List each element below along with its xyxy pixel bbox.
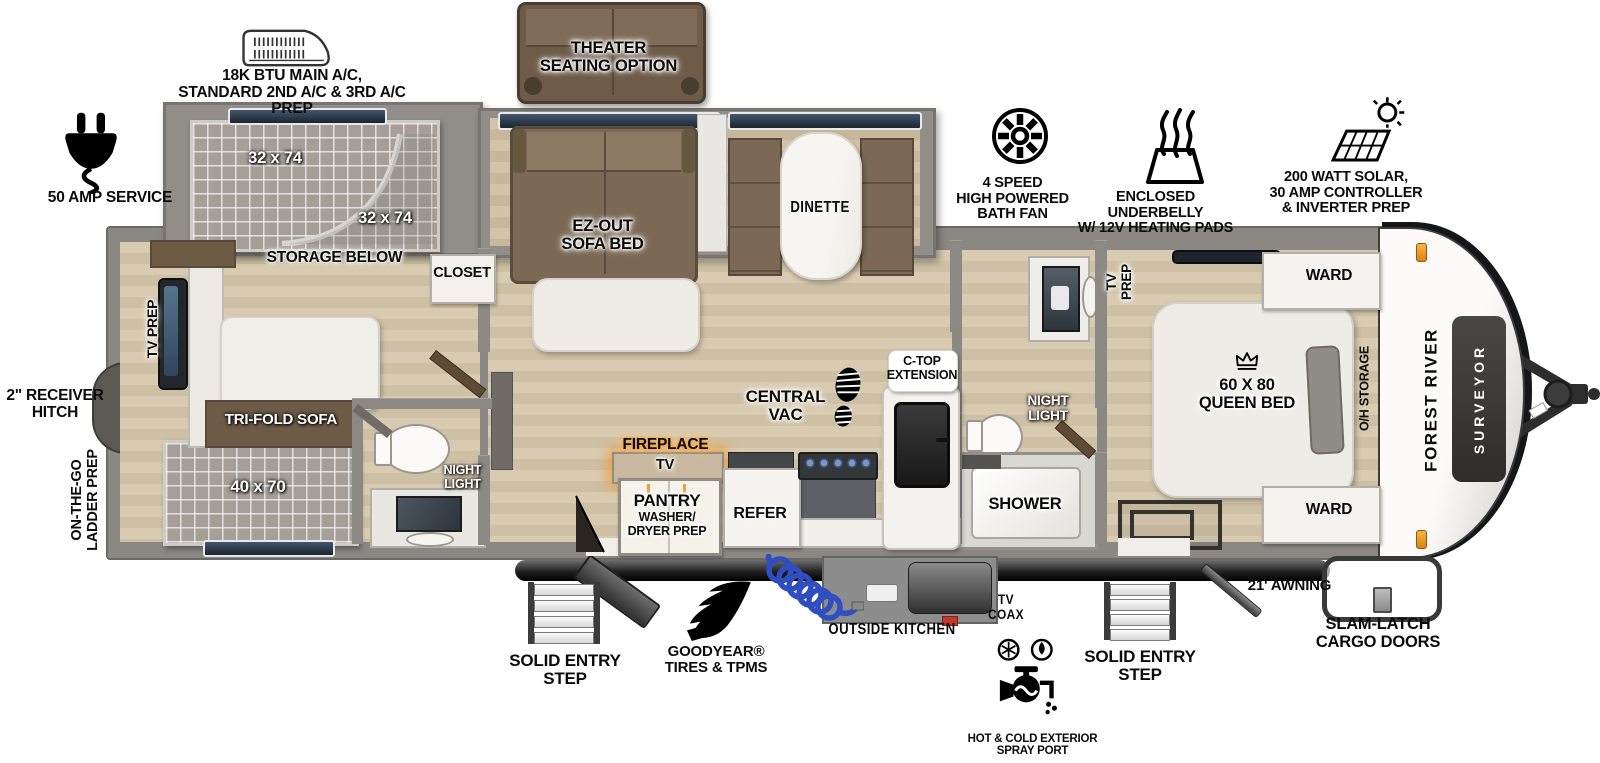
- sink-faucet: [936, 438, 950, 442]
- ez-sofa-pullout-bed: [532, 278, 700, 352]
- solar-label: 200 WATT SOLAR, 30 AMP CONTROLLER & INVE…: [1262, 170, 1430, 217]
- slam-latch-door: [1322, 556, 1442, 622]
- awning-label: 21' AWNING: [1242, 578, 1337, 594]
- spray-port-icon: [995, 638, 1071, 716]
- surveyor-logo: SURVEYOR: [1471, 344, 1487, 454]
- midbath-vanity: [1028, 256, 1090, 342]
- hall-wardrobe: [491, 372, 513, 470]
- surveyor-panel: SURVEYOR: [1452, 316, 1506, 482]
- rear-vanity-mirror: [396, 496, 462, 532]
- midbath-sink-basin: [1051, 286, 1069, 310]
- step-tread: [534, 584, 594, 596]
- underbelly-heat-icon: [1140, 108, 1210, 186]
- dinette-slide-window: [728, 112, 922, 130]
- fireplace-label: FIREPLACE: [608, 437, 723, 454]
- refer-label: REFER: [718, 505, 802, 522]
- stove-cooktop: [798, 452, 878, 480]
- oh-storage-label: O/H STORAGE: [1359, 323, 1374, 455]
- outside-kitchen-label: OUTSIDE KITCHEN: [824, 622, 960, 639]
- step-tread: [1110, 599, 1170, 611]
- bedroom-wall-lower: [1095, 452, 1107, 544]
- step-tread: [1110, 614, 1170, 626]
- bedroom-entry-gap: [1118, 538, 1190, 556]
- midbath-vanity-sink: [1042, 266, 1080, 332]
- midbath-left-wall-upper: [950, 240, 962, 332]
- ez-sofa-bed: [510, 126, 698, 284]
- closet-label: CLOSET: [426, 266, 498, 282]
- theater-armrest-right: [681, 77, 699, 95]
- forest-river-logo: FOREST RIVER: [1423, 313, 1443, 488]
- solar-icon: [1328, 96, 1406, 168]
- ward-bottom-label: WARD: [1284, 502, 1374, 519]
- entry-steps-right: [1104, 582, 1176, 644]
- entry-step-right-label: SOLID ENTRY STEP: [1080, 648, 1200, 685]
- tv-label: TV: [635, 458, 695, 474]
- sofa-armrest-left: [513, 129, 526, 173]
- midbath-toilet-tank: [966, 420, 983, 452]
- ladder-prep-label: ON-THE-GO LADDER PREP: [70, 430, 106, 570]
- theater-option-label: THEATER SEATING OPTION: [525, 40, 692, 76]
- rear-tv-screen: [164, 286, 178, 376]
- floorplan-stage: 18K BTU MAIN A/C, STANDARD 2ND A/C & 3RD…: [0, 0, 1600, 763]
- bunk-upper-label: 32 x 74: [235, 150, 315, 168]
- power-plug-icon: [62, 110, 120, 194]
- stove-body: [798, 476, 876, 522]
- dinette-label: DINETTE: [784, 200, 855, 217]
- rear-bottom-window: [203, 540, 335, 557]
- crown-icon: [1234, 351, 1260, 372]
- trifold-label: TRI-FOLD SOFA: [218, 412, 344, 428]
- marker-light-top: [1416, 243, 1427, 262]
- shower-bench: [961, 455, 1001, 469]
- sofa-armrest-right: [682, 129, 695, 173]
- rear-vanity: [370, 488, 486, 548]
- bunk-lower-label: 32 x 74: [345, 210, 425, 228]
- marker-light-bottom: [1416, 530, 1427, 549]
- entry-steps-left: [528, 582, 600, 648]
- goodyear-wingfoot-icon: [678, 580, 754, 642]
- step-tread: [534, 616, 594, 628]
- dinette-bench-right: [860, 138, 914, 276]
- ac-note-label: 18K BTU MAIN A/C, STANDARD 2ND A/C & 3RD…: [167, 68, 417, 118]
- rear-bunk-label: 40 x 70: [212, 478, 304, 496]
- slide-divider-trim: [697, 114, 727, 252]
- shower-label: SHOWER: [978, 496, 1072, 514]
- goodyear-label: GOODYEAR® TIRES & TPMS: [650, 644, 782, 676]
- kitchen-sink: [894, 402, 950, 488]
- trifold-bed: [220, 316, 380, 410]
- slam-latch-label: SLAM-LATCH CARGO DOORS: [1298, 616, 1458, 652]
- tv-prep-rear-label: TV PREP: [145, 279, 163, 379]
- central-vac-label: CENTRAL VAC: [738, 388, 833, 425]
- dinette-bench-left: [728, 138, 782, 276]
- rear-bath-left-wall: [352, 398, 363, 544]
- ctop-label: C-TOP EXTENSION: [884, 355, 960, 382]
- underbelly-label: ENCLOSED UNDERBELLY W/ 12V HEATING PADS: [1068, 190, 1243, 237]
- ez-sofa-label: EZ-OUT SOFA BED: [545, 218, 660, 254]
- night-light-mid-label: NIGHT LIGHT: [1013, 394, 1083, 423]
- outside-kitchen-handle: [866, 584, 898, 602]
- bedroom-step-inner: [1130, 510, 1194, 540]
- storage-below-label: STORAGE BELOW: [252, 250, 417, 267]
- slam-latch-handle: [1373, 587, 1392, 613]
- rear-toilet-tank: [374, 432, 392, 466]
- spray-port-label: HOT & COLD EXTERIOR SPRAY PORT: [950, 733, 1115, 758]
- night-light-rear-label: NIGHT LIGHT: [425, 464, 500, 491]
- receiver-hitch-label: 2" RECEIVER HITCH: [0, 388, 110, 421]
- step-rail: [594, 582, 600, 644]
- rear-bath-top-wall: [352, 398, 492, 409]
- step-tread: [534, 632, 594, 644]
- step-tread: [1110, 629, 1170, 641]
- step-tread: [1110, 584, 1170, 596]
- rear-vanity-sink: [406, 532, 454, 547]
- entry-step-left-label: SOLID ENTRY STEP: [505, 652, 625, 689]
- pantry-label: PANTRY: [616, 492, 718, 510]
- tv-prep-bedroom-label: TV PREP: [1105, 250, 1145, 314]
- bath-fan-icon: [990, 106, 1050, 166]
- step-tread: [534, 600, 594, 612]
- step-rail: [1170, 582, 1176, 640]
- bath-fan-label: 4 SPEED HIGH POWERED BATH FAN: [950, 176, 1075, 223]
- tv-coax-label: TV COAX: [982, 592, 1030, 622]
- pantry-sub-label: WASHER/ DRYER PREP: [616, 511, 718, 538]
- outside-kitchen-griddle: [908, 562, 992, 614]
- queen-bed-label: 60 X 80 QUEEN BED: [1172, 377, 1322, 413]
- ac-unit-icon: [240, 26, 335, 70]
- 50amp-label: 50 AMP SERVICE: [30, 190, 190, 207]
- boot-print-icon: [828, 366, 866, 430]
- ward-top-label: WARD: [1284, 268, 1374, 285]
- theater-armrest-left: [524, 77, 542, 95]
- rear-corner-cabinet: [150, 240, 236, 268]
